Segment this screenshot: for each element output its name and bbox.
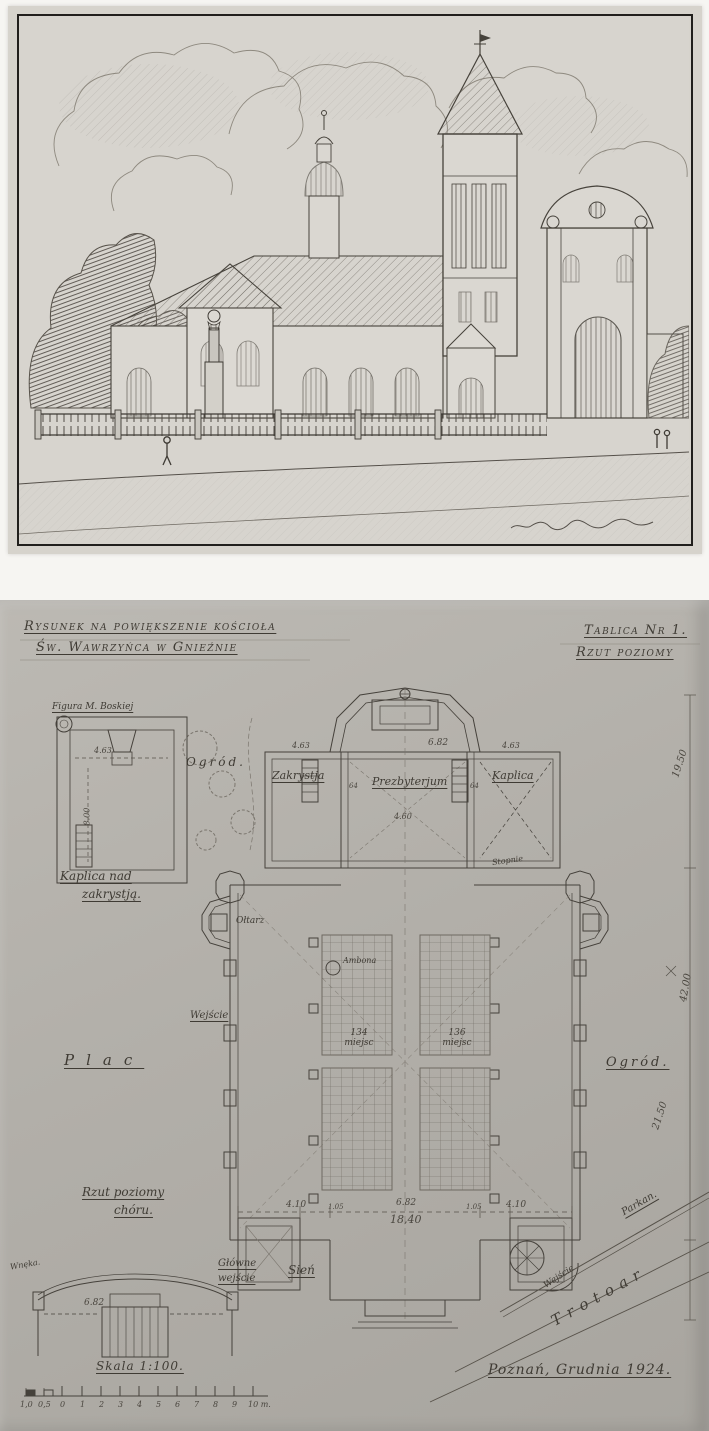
label-seats-right: 136 miejsc [438,1028,476,1049]
plate-number: Tablica Nr 1. [584,624,687,639]
scale-tick-3: 1 [80,1400,85,1409]
label-figura: Figura M. Boskiej [52,702,133,712]
scale-tick-5: 3 [118,1400,123,1409]
scale-bar [24,1386,268,1396]
label-kaplica-nad-1: Kaplica nad [60,870,132,884]
label-prezbyterjum: Prezbyterjum [372,776,447,789]
scale-tick-8: 6 [175,1400,180,1409]
scale-tick-7: 5 [156,1400,161,1409]
label-entrance-left: Wejście [190,1010,228,1022]
dim-front-1: 4.10 [286,1200,306,1210]
dim-wall-left: 64 [349,782,358,790]
organ-hatch [102,1307,168,1357]
scale-tick-9: 7 [194,1400,199,1409]
scale-tick-11: 9 [232,1400,237,1409]
fence [35,410,547,439]
scale-tick-12: 10 m. [248,1400,271,1409]
choir-plan [33,1274,238,1357]
scale-tick-4: 2 [99,1400,104,1409]
sheet-title-line2: Św. Wawrzyńca w Gnieźnie [36,641,238,656]
stair-ladder-right [452,760,468,802]
scale-tick-1: 0,5 [38,1400,51,1409]
dim-chapel-height: 8.00 [82,808,91,826]
dim-front-5: 4.10 [506,1200,526,1210]
dim-choir-width: 6.82 [84,1298,104,1308]
scale-tick-0: 1,0 [20,1400,33,1409]
dim-prezbyterjum-width: 6.82 [428,738,448,748]
label-oltarz: Ołtarz [236,916,264,926]
dim-zakrystja-width: 4.63 [292,741,310,750]
dim-front-2: 1.05 [328,1203,344,1211]
dim-wall-right: 64 [470,782,479,790]
chapel-stair [76,825,92,867]
dim-front-3: 6.82 [396,1198,416,1208]
dim-kaplica-width: 4.63 [502,741,520,750]
label-ambona: Ambona [343,956,376,965]
label-kaplica: Kaplica [492,770,534,783]
dim-prezbyterjum-depth: 4.60 [394,812,412,821]
drawing-frame [17,14,693,546]
dim-chapel-width: 4.63 [94,746,112,755]
plate-subtitle: Rzut poziomy [576,646,674,661]
dim-front-4: 1.05 [466,1203,482,1211]
label-choir-plan-2: chóru. [114,1204,153,1218]
label-kaplica-nad-2: zakrystją. [82,888,141,902]
sheet-title-line1: Rysunek na powiększenie kościoła [24,620,276,635]
transept-left [202,896,230,949]
label-plac: Plac [64,1052,144,1069]
label-choir-plan-1: Rzut poziomy [82,1186,164,1200]
scanned-architectural-sheet: Rysunek na powiększenie kościoła Św. Waw… [0,0,709,1431]
transept-right [580,896,608,949]
label-seats-left: 134 miejsc [340,1028,378,1049]
label-zakrystja: Zakrystja [272,770,324,783]
label-main-entrance-1: Główne [218,1258,256,1270]
dim-front-total: 18,40 [390,1214,422,1227]
label-main-entrance-2: wejście [218,1273,255,1285]
footer-place-date: Poznań, Grudnia 1924. [488,1362,671,1378]
garden-trees [183,718,255,850]
scale-tick-2: 0 [60,1400,65,1409]
label-sien: Sień [288,1264,315,1278]
floor-plan-drawing [0,600,709,1431]
scale-label: Skala 1:100. [96,1360,184,1374]
label-garden-left: Ogród. [186,756,246,770]
church-perspective-sketch [19,16,689,540]
perspective-drawing-panel [8,6,702,554]
scale-tick-6: 4 [137,1400,142,1409]
scale-tick-10: 8 [213,1400,218,1409]
label-garden-right: Ogród. [606,1056,669,1071]
small-chapel-plan [56,716,187,883]
floor-plan-panel: Rysunek na powiększenie kościoła Św. Waw… [0,600,709,1431]
